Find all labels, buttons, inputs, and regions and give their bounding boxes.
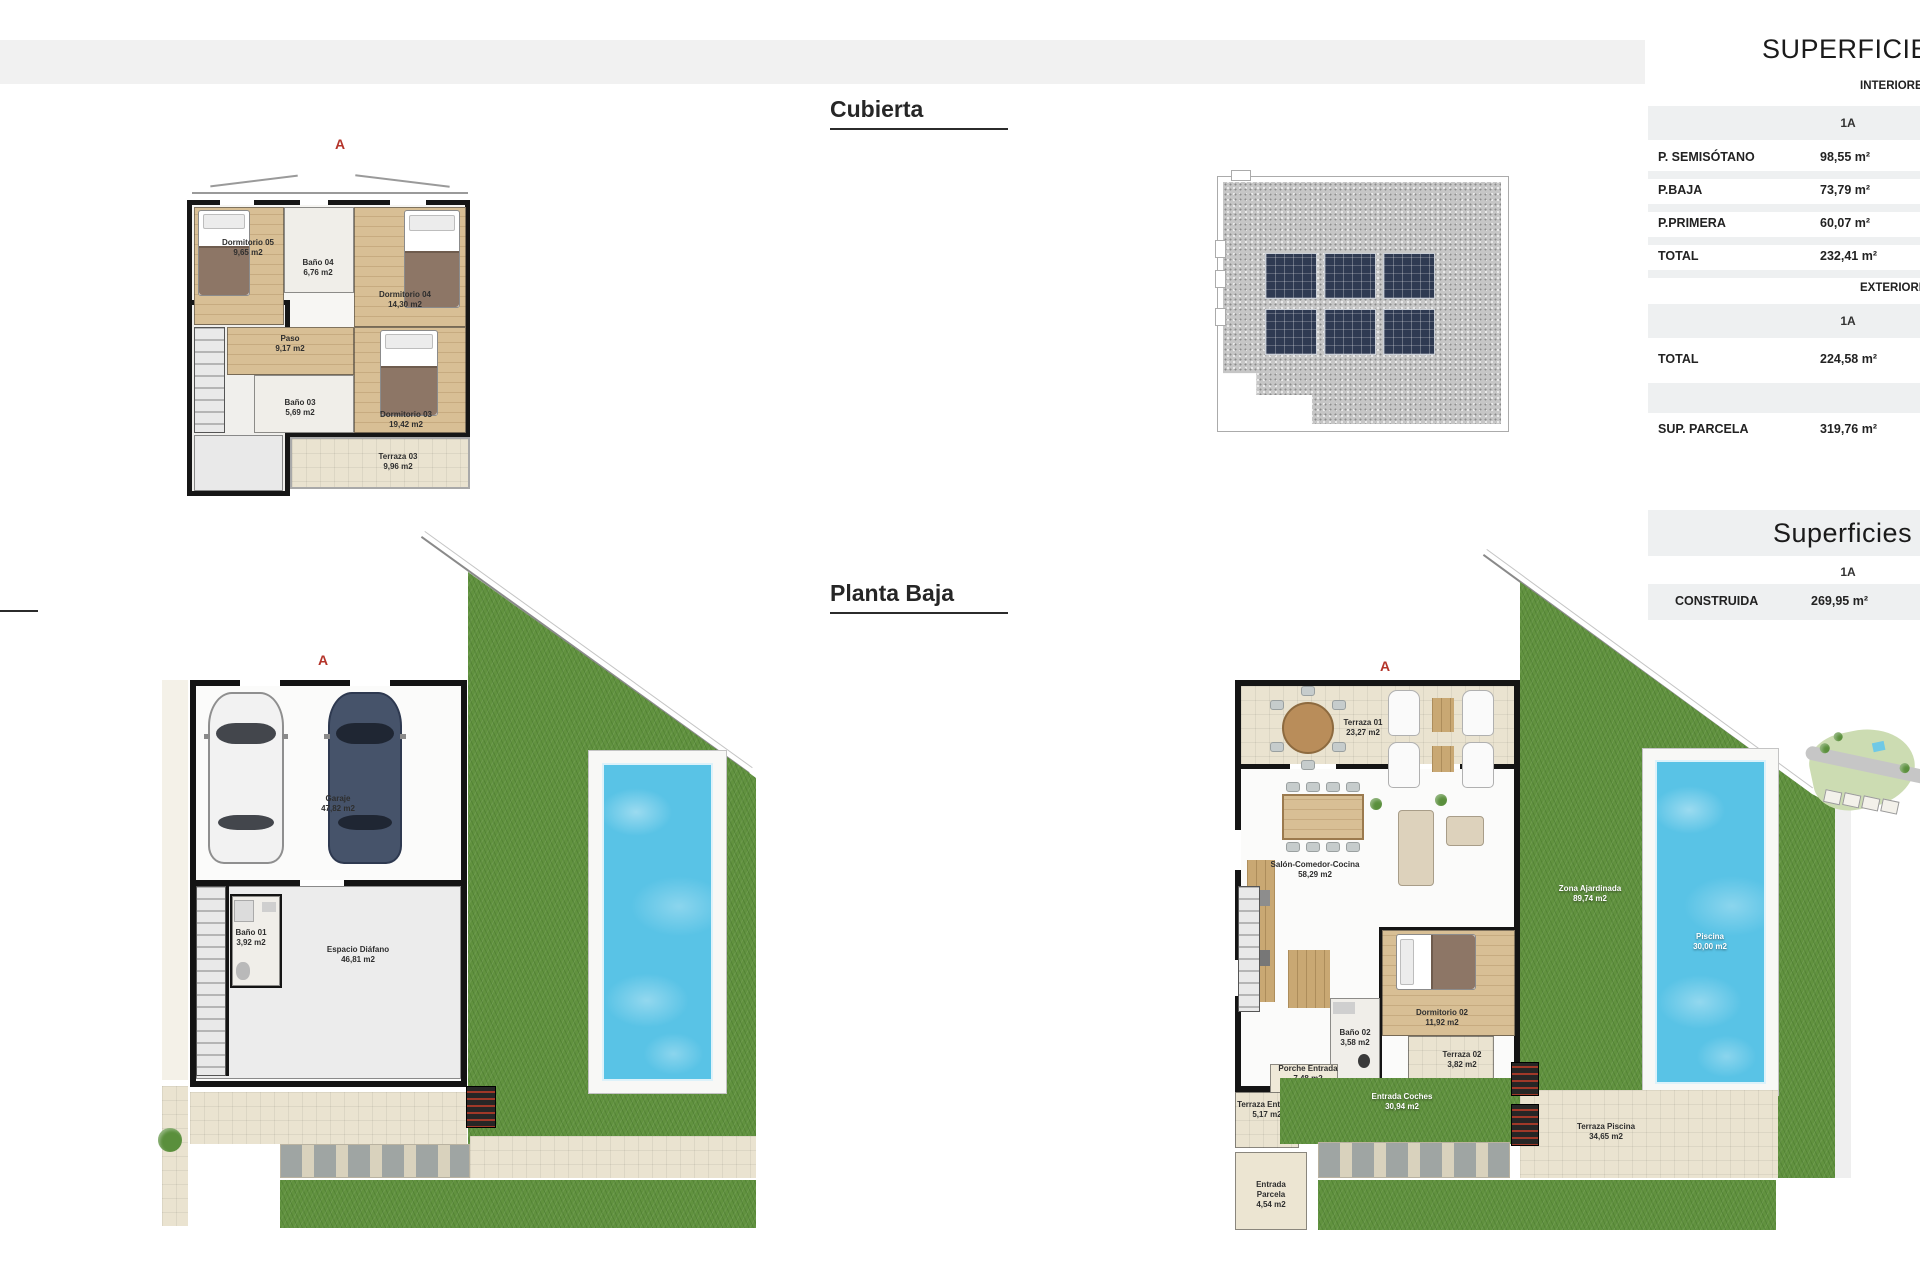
cut-title-underline: [0, 610, 38, 612]
site-house: [1880, 798, 1899, 814]
unit-header-exterior: 1A: [1648, 314, 1920, 328]
barbecue: [1511, 1062, 1539, 1096]
stairs: [196, 886, 226, 1076]
plant: [1435, 794, 1447, 806]
sun-lounger: [1462, 690, 1494, 736]
superficies-table-title: SUPERFICIES: [1762, 34, 1920, 65]
row-pbaja-value: 73,79 m²: [1820, 183, 1870, 197]
planta-baja-underline: [830, 612, 1008, 614]
row-total-ext-label: TOTAL: [1658, 352, 1699, 366]
car-white: [208, 692, 284, 864]
room-label: Salón-Comedor-Cocina58,29 m2: [1270, 860, 1360, 880]
site-house: [1861, 795, 1880, 811]
top-band: [0, 40, 1645, 84]
roof-overhang-line: [355, 174, 449, 187]
room-bano-04: [284, 207, 354, 293]
sink: [1333, 1002, 1355, 1014]
toilet: [1358, 1054, 1370, 1068]
chair: [1346, 782, 1360, 792]
row-semisotano-value: 98,55 m²: [1820, 150, 1870, 164]
room-label: Zona Ajardinada89,74 m2: [1550, 884, 1630, 904]
plan-baja-marker: A: [1380, 658, 1390, 674]
room-label: Baño 046,76 m2: [278, 258, 358, 278]
driveway-pavers: [1318, 1142, 1510, 1178]
chair: [1286, 842, 1300, 852]
unit-header-interior: 1A: [1648, 116, 1920, 130]
chair: [1270, 700, 1284, 710]
room-label: Baño 035,69 m2: [260, 398, 340, 418]
room-label: Terraza 039,96 m2: [358, 452, 438, 472]
plan-primera: A Dormitorio 059,65 m2 Baño 046,76 m2 Do…: [150, 130, 495, 515]
driveway-pavers: [280, 1144, 470, 1178]
plan-baja: A Piscina30,00 m2 Zona Ajardinada89,74 m…: [1230, 530, 1920, 1245]
solar-panel: [1265, 253, 1317, 299]
solar-panel: [1383, 253, 1435, 299]
chair: [1306, 782, 1320, 792]
armchair: [1446, 816, 1484, 846]
plan-cubierta: [1215, 170, 1515, 470]
toilet: [236, 962, 250, 980]
room-label: Dormitorio 0414,30 m2: [365, 290, 445, 310]
roof-vent: [1215, 308, 1226, 326]
car-dark: [328, 692, 402, 864]
solar-panel: [1324, 253, 1376, 299]
sink: [262, 902, 276, 912]
sun-lounger: [1388, 742, 1420, 788]
row-total-int-label: TOTAL: [1658, 249, 1699, 263]
roof-vent: [1215, 270, 1226, 288]
terrace-strip: [162, 1086, 188, 1226]
row-parcela-value: 319,76 m²: [1820, 422, 1877, 436]
interior-wall: [226, 886, 229, 1076]
window: [220, 200, 254, 205]
row-parcela-label: SUP. PARCELA: [1658, 422, 1749, 436]
side-table: [1432, 746, 1454, 772]
chair: [1270, 742, 1284, 752]
barbecue: [466, 1086, 496, 1128]
room-label: Terraza 0123,27 m2: [1328, 718, 1398, 738]
pool: [1655, 760, 1766, 1084]
exterior-section-header: EXTERIORES: [1860, 282, 1920, 294]
row-pbaja-label: P.BAJA: [1658, 183, 1702, 197]
sun-lounger: [1462, 742, 1494, 788]
solar-panel: [1324, 309, 1376, 355]
roof-gravel-surface: [1223, 182, 1501, 424]
room-label: Entrada Coches30,94 m2: [1367, 1092, 1437, 1112]
solar-panel: [1265, 309, 1317, 355]
stairs: [194, 327, 225, 433]
window: [390, 200, 426, 205]
chair: [1286, 782, 1300, 792]
kitchen-island: [1288, 950, 1330, 1008]
shower: [234, 900, 254, 922]
sofa: [1398, 810, 1434, 886]
room-label: Dormitorio 0211,92 m2: [1407, 1008, 1477, 1028]
room-label: Entrada Parcela4,54 m2: [1241, 1180, 1301, 1210]
row-total-int-value: 232,41 m²: [1820, 249, 1877, 263]
row-pprimera-value: 60,07 m²: [1820, 216, 1870, 230]
garden-walk: [470, 1136, 756, 1178]
room-label: Terraza Piscina34,65 m2: [1566, 1122, 1646, 1142]
solar-panel: [1383, 309, 1435, 355]
row-pprimera-label: P.PRIMERA: [1658, 216, 1726, 230]
room-label: Piscina30,00 m2: [1670, 932, 1750, 952]
tree: [158, 1128, 182, 1152]
chair: [1326, 842, 1340, 852]
bed: [380, 330, 438, 416]
superficies-table: SUPERFICIES INTERIORES 1A P. SEMISÓTANO …: [1648, 0, 1920, 470]
window: [350, 680, 390, 686]
pool: [602, 763, 713, 1081]
grass-strip: [280, 1180, 756, 1228]
planta-baja-title: Planta Baja: [830, 580, 954, 607]
room-label: Paso9,17 m2: [250, 334, 330, 354]
chair: [1301, 686, 1315, 696]
round-table: [1282, 702, 1334, 754]
bed: [1396, 934, 1476, 990]
cubierta-title: Cubierta: [830, 96, 923, 123]
side-strip: [162, 680, 188, 1080]
side-table: [1432, 698, 1454, 732]
plant: [1370, 798, 1382, 810]
plan-semisotano-marker: A: [318, 652, 328, 668]
chair: [1306, 842, 1320, 852]
room-landing: [194, 435, 283, 491]
cubierta-underline: [830, 128, 1008, 130]
window: [240, 680, 280, 686]
room-terraza-piscina: [1520, 1090, 1778, 1178]
chair: [1326, 782, 1340, 792]
roof-vent: [1215, 240, 1226, 258]
room-label: Baño 023,58 m2: [1320, 1028, 1390, 1048]
chair: [1332, 700, 1346, 710]
chair: [1346, 842, 1360, 852]
window: [300, 200, 328, 205]
grass-strip: [1318, 1180, 1776, 1230]
window: [1235, 830, 1241, 870]
room-label: Baño 013,92 m2: [216, 928, 286, 948]
interior-section-header: INTERIORES: [1860, 80, 1920, 92]
room-label: Dormitorio 059,65 m2: [208, 238, 288, 258]
dining-table: [1282, 794, 1364, 840]
chair: [1301, 760, 1315, 770]
barbecue: [1511, 1104, 1539, 1146]
row-semisotano-label: P. SEMISÓTANO: [1658, 150, 1755, 164]
plan-semisotano: A Garaje47,82 m2 Baño 013,92 m2 Espacio …: [150, 530, 840, 1245]
floorplan-sheet: Cubierta Planta Baja SUPERFICIES INTERIO…: [0, 0, 1920, 1280]
room-label: Garaje47,82 m2: [298, 794, 378, 814]
roof-overhang-line: [192, 192, 468, 194]
chair: [1332, 742, 1346, 752]
roof-vent: [1231, 170, 1251, 181]
room-label: Dormitorio 0319,42 m2: [366, 410, 446, 430]
plan-primera-marker: A: [335, 136, 345, 152]
room-label: Terraza 023,82 m2: [1427, 1050, 1497, 1070]
row-total-ext-value: 224,58 m²: [1820, 352, 1877, 366]
stairs: [1238, 886, 1260, 1012]
room-label: Espacio Diáfano46,81 m2: [318, 945, 398, 965]
roof-overhang-line: [210, 175, 298, 187]
terrace-strip: [190, 1092, 467, 1144]
